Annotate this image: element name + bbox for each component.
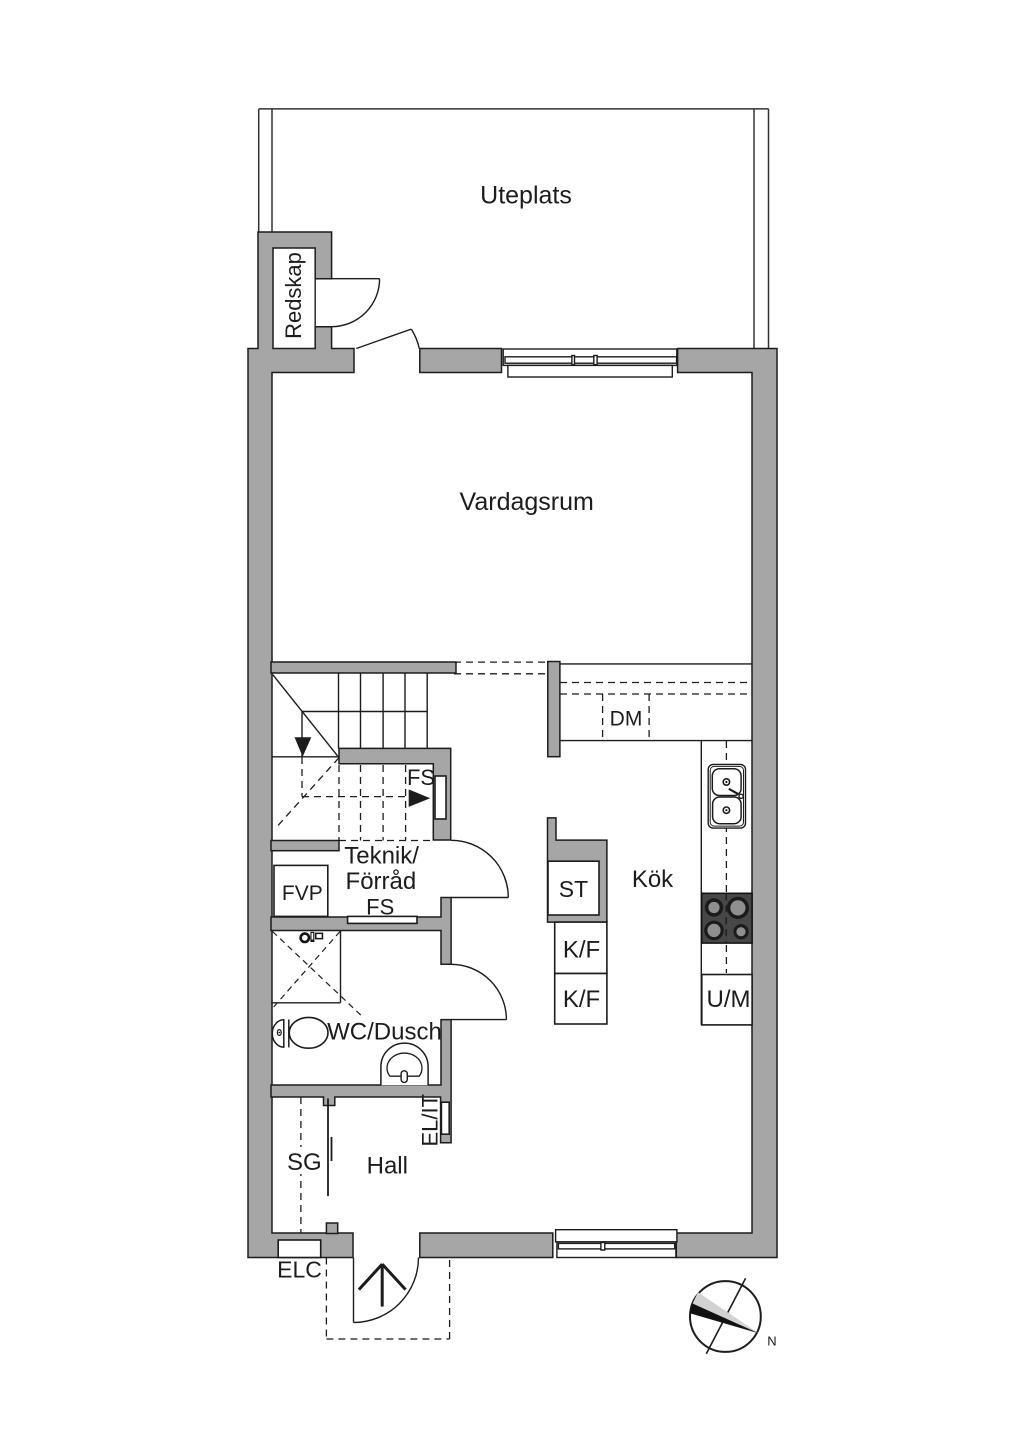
svg-text:FS: FS — [366, 895, 394, 920]
svg-text:Hall: Hall — [367, 1153, 408, 1180]
svg-text:SG: SG — [287, 1149, 322, 1176]
svg-text:EL/IT: EL/IT — [418, 1094, 443, 1147]
svg-text:ELC: ELC — [277, 1257, 322, 1283]
svg-text:Kök: Kök — [632, 866, 674, 893]
svg-text:DM: DM — [610, 708, 643, 731]
svg-text:Teknik/: Teknik/ — [344, 843, 419, 870]
svg-text:FS: FS — [407, 765, 435, 790]
svg-text:ST: ST — [559, 876, 588, 902]
svg-text:FVP: FVP — [282, 882, 323, 905]
svg-text:U/M: U/M — [707, 986, 751, 1013]
svg-text:Vardagsrum: Vardagsrum — [460, 488, 594, 516]
svg-text:Uteplats: Uteplats — [480, 182, 572, 210]
svg-text:K/F: K/F — [563, 986, 600, 1013]
svg-text:Förråd: Förråd — [346, 868, 417, 895]
svg-text:WC/Dusch: WC/Dusch — [327, 1019, 442, 1046]
svg-text:N: N — [767, 1334, 776, 1349]
svg-text:K/F: K/F — [563, 937, 600, 964]
svg-text:Redskap: Redskap — [281, 252, 306, 339]
